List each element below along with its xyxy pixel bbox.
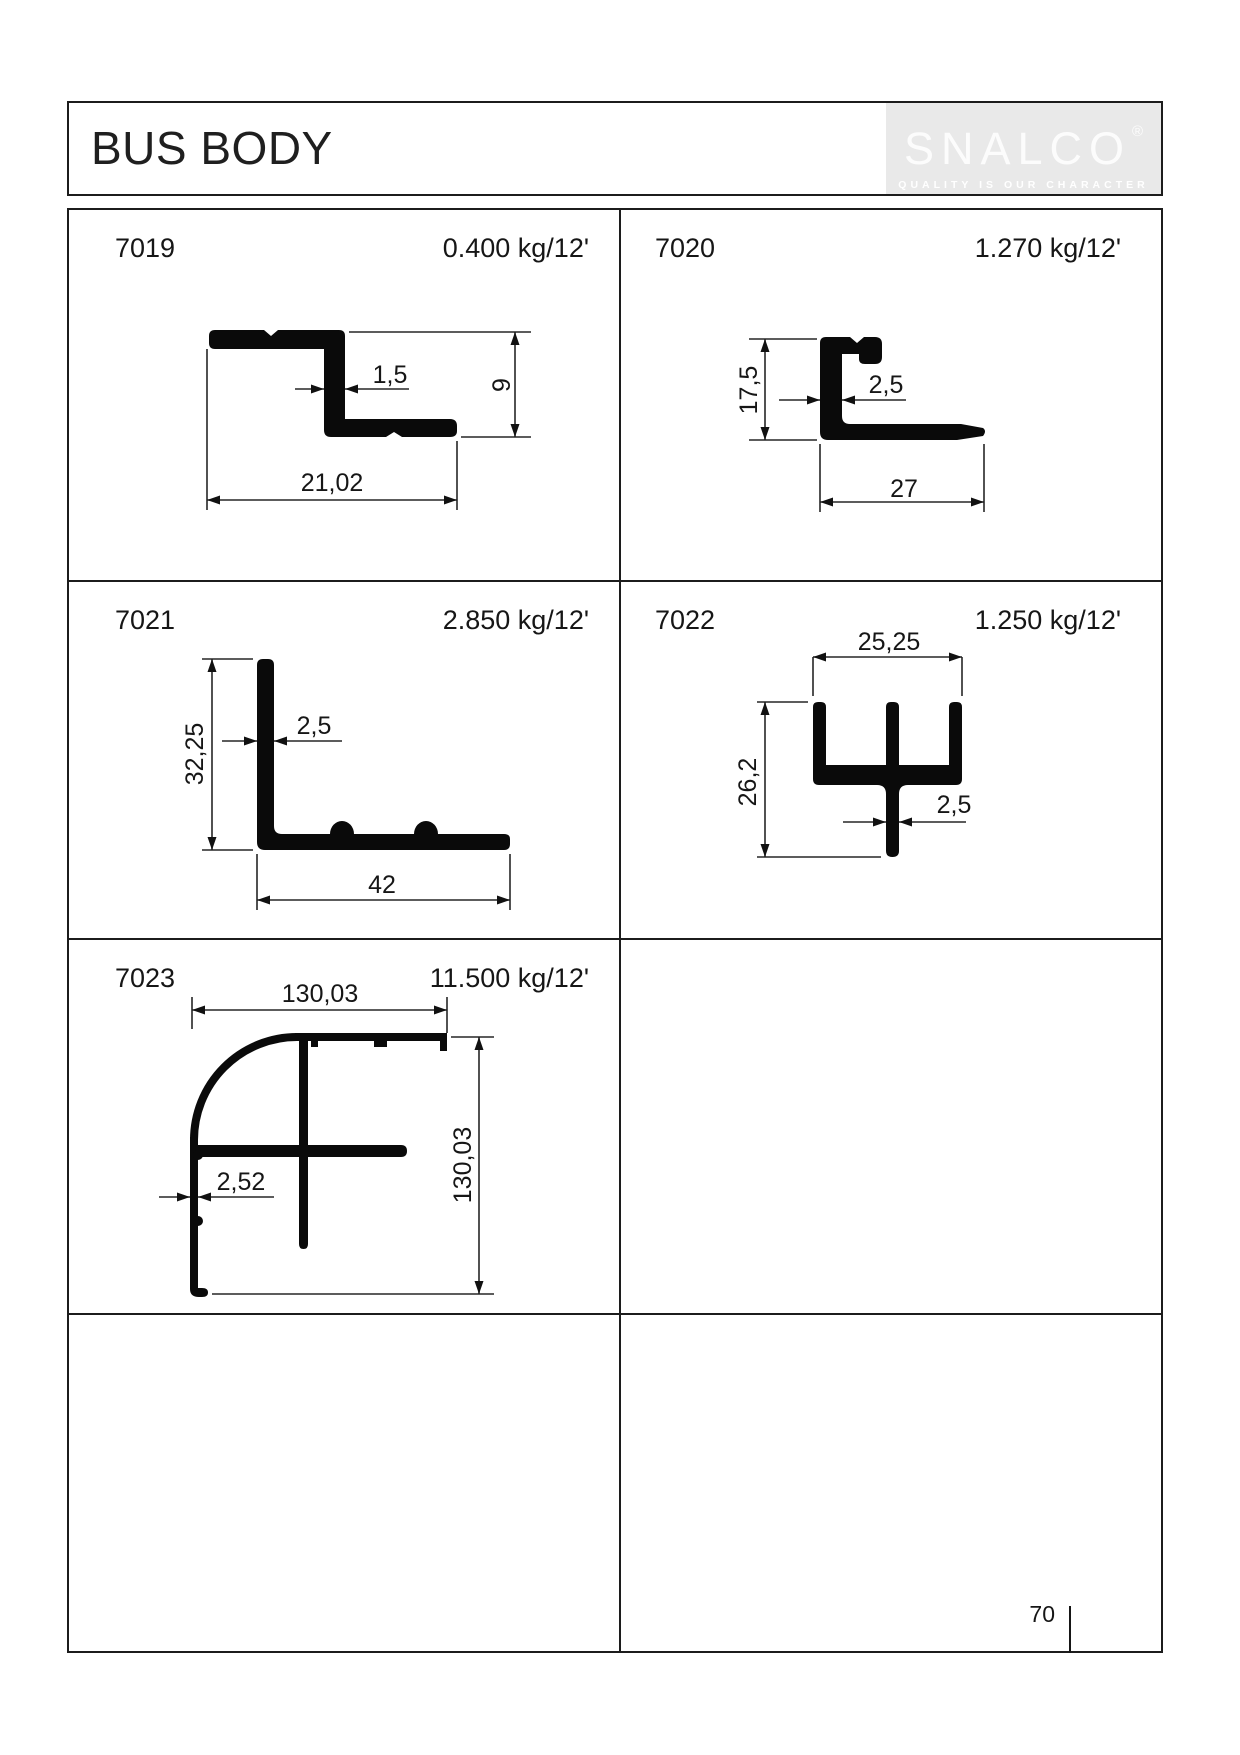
dim-thickness-label: 2,5 [297, 712, 332, 740]
profile-drawing-7022: 25,25 26,2 2,5 [621, 582, 1161, 938]
dim-thickness: 2,52 [159, 1168, 274, 1202]
dim-height: 32,25 [181, 659, 253, 850]
profile-drawing-7021: 32,25 2,5 42 [69, 582, 619, 938]
logo-wordmark: SNALCO® [886, 104, 1161, 177]
snalco-logo: SNALCO® QUALITY IS OUR CHARACTER [886, 103, 1161, 194]
dim-height-label: 130,03 [449, 1127, 477, 1203]
dim-height-label: 9 [488, 378, 516, 392]
profile-drawing-7023: 130,03 2,52 130,03 [69, 940, 619, 1313]
dim-thickness-label: 1,5 [373, 361, 408, 389]
profile-shape [190, 1033, 447, 1297]
profile-cell-7022: 7022 1.250 kg/12' 25,25 [621, 582, 1161, 940]
dim-top-width: 25,25 [813, 628, 962, 696]
registered-mark: ® [1132, 123, 1143, 140]
profile-shape [813, 702, 962, 857]
dim-top-width-label: 130,03 [282, 980, 358, 1008]
profile-cell-7020: 7020 1.270 kg/12' 17,5 [621, 210, 1161, 582]
dim-width-label: 42 [368, 871, 396, 899]
page-header: BUS BODY SNALCO® QUALITY IS OUR CHARACTE… [67, 101, 1163, 196]
dim-top-width-label: 25,25 [858, 628, 921, 656]
dim-height-label: 26,2 [734, 758, 762, 807]
dim-thickness-label: 2,5 [869, 371, 904, 399]
logo-tagline: QUALITY IS OUR CHARACTER [886, 179, 1161, 191]
profile-shape [257, 659, 510, 850]
dim-thickness: 2,5 [222, 712, 342, 746]
page-number-tick [1069, 1606, 1071, 1653]
logo-brand-text: SNALCO [904, 123, 1131, 174]
profile-grid: 7019 0.400 kg/12' 1,5 9 [67, 208, 1163, 1653]
catalog-page: BUS BODY SNALCO® QUALITY IS OUR CHARACTE… [0, 0, 1240, 1755]
dim-height-label: 17,5 [735, 366, 763, 415]
profile-cell-7021: 7021 2.850 kg/12' 32,25 [69, 582, 621, 940]
dim-thickness: 2,5 [843, 791, 971, 827]
dim-width-label: 21,02 [301, 469, 364, 497]
dim-width: 42 [257, 854, 510, 910]
dim-thickness: 2,5 [779, 371, 906, 405]
dim-thickness: 1,5 [295, 361, 409, 394]
dim-thickness-label: 2,5 [937, 791, 972, 819]
profile-shape [209, 330, 457, 437]
dim-height: 17,5 [735, 339, 817, 440]
empty-cell [621, 1315, 1161, 1651]
dim-thickness-label: 2,52 [217, 1168, 266, 1196]
dim-height-label: 32,25 [181, 723, 209, 786]
dim-width: 27 [820, 444, 984, 512]
page-title: BUS BODY [91, 120, 333, 174]
dim-height: 130,03 [212, 1037, 494, 1294]
profile-drawing-7019: 1,5 9 21,02 [69, 210, 619, 580]
profile-cell-7023: 7023 11.500 kg/12' [69, 940, 621, 1315]
empty-cell [69, 1315, 621, 1651]
dim-width-label: 27 [890, 475, 918, 503]
profile-cell-7019: 7019 0.400 kg/12' 1,5 9 [69, 210, 621, 582]
empty-cell [621, 940, 1161, 1315]
dim-top-width: 130,03 [192, 980, 447, 1033]
profile-drawing-7020: 17,5 2,5 27 [621, 210, 1161, 580]
page-number: 70 [975, 1601, 1055, 1628]
